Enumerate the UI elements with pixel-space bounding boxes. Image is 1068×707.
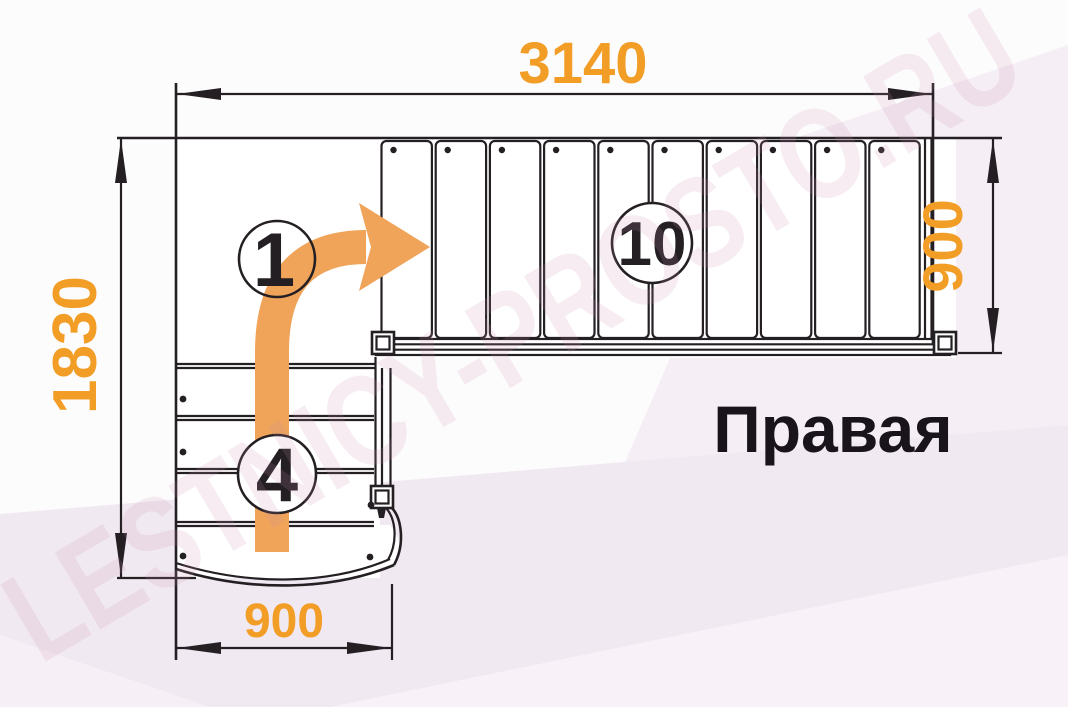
stair-plan-diagram: 3140 1830 900 900 1 10 4 Правая LESTNICY… [0,0,1068,707]
fastener-dot [553,147,559,153]
dimension-right-value: 900 [911,199,974,292]
fastener-dot [367,554,374,561]
dimension-top-value: 3140 [518,31,647,96]
dimension-left-value: 1830 [41,276,110,414]
fastener-dot [607,147,613,153]
step-number-landing: 1 [253,218,295,303]
newel-post-right [934,332,956,354]
fastener-dot [661,147,667,153]
fastener-dot [390,147,396,153]
fastener-dot [445,147,451,153]
fastener-dot [180,396,187,403]
dimension-bottom-value: 900 [244,595,324,648]
orientation-title: Правая [713,392,952,466]
stair-plan-page: 3140 1830 900 900 1 10 4 Правая LESTNICY… [0,0,1068,707]
fastener-dot [499,147,505,153]
